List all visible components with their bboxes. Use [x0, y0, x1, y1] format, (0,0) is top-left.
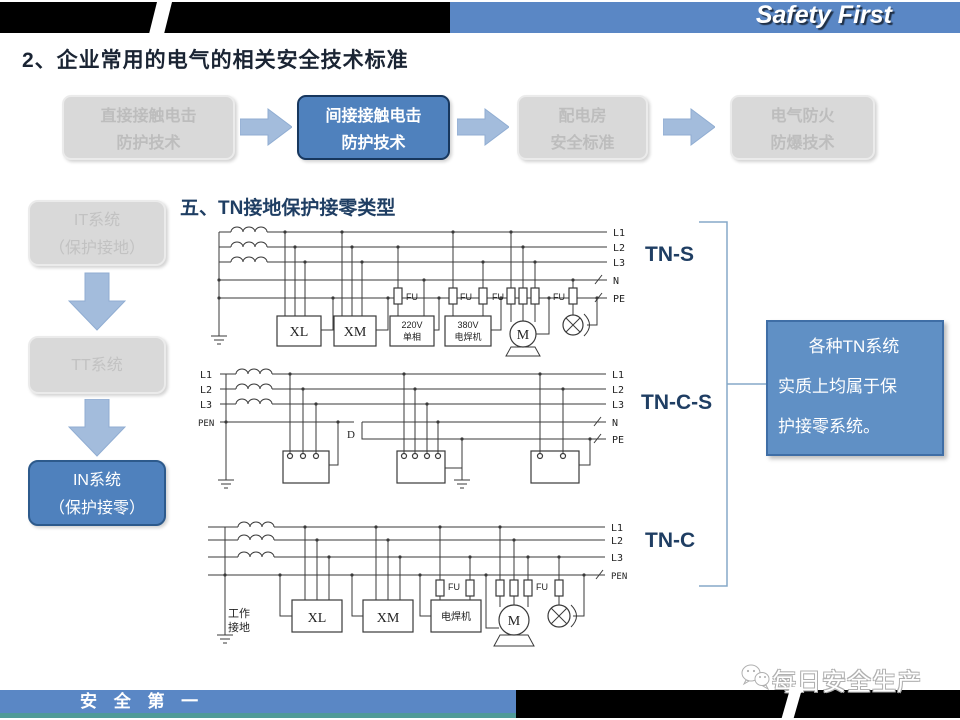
- fuse-label: FU: [492, 292, 504, 302]
- fuse-symbol: [531, 288, 539, 304]
- load-label: XL: [308, 611, 327, 626]
- working-ground-label: 接地: [228, 621, 250, 634]
- flow-box-line2: 安全标准: [519, 130, 646, 157]
- motor-base: [494, 635, 534, 646]
- note-line: 护接零系统。: [778, 407, 934, 447]
- bus-label: L2: [200, 385, 212, 396]
- junction-dots: [223, 525, 585, 576]
- tns-circuit-diagram: L1 L2 L3 N PE XL XM 220V 单相 380V 电焊机 FU …: [211, 218, 641, 360]
- load-label: XM: [344, 325, 367, 340]
- bus-label: L3: [612, 400, 624, 411]
- page-title: 2、企业常用的电气的相关安全技术标准: [22, 44, 409, 74]
- working-ground-label: 工作: [228, 607, 250, 620]
- ground-symbol: [218, 374, 234, 488]
- fuse-symbol: [496, 580, 504, 596]
- bus-label: PEN: [198, 419, 214, 429]
- down-arrow-icon: [68, 271, 126, 333]
- flow-box-line1: 配电房: [519, 103, 646, 130]
- flow-box-direct-contact: 直接接触电击 防护技术: [62, 95, 235, 160]
- flow-box-line2: 防爆技术: [732, 130, 873, 157]
- fuse-symbol: [436, 580, 444, 596]
- flow-box-line1: 直接接触电击: [64, 103, 233, 130]
- load-label: 380V: [457, 320, 478, 330]
- motor-label: M: [517, 328, 530, 343]
- slide: Safety First 2、企业常用的电气的相关安全技术标准 直接接触电击 防…: [0, 0, 960, 720]
- fuse-symbol: [519, 288, 527, 304]
- fuse-symbol: [466, 580, 474, 596]
- side-box-line2: （保护接地）: [30, 235, 164, 263]
- bus-label: PEN: [611, 572, 627, 582]
- fuse-symbol: [507, 288, 515, 304]
- tnc-circuit-diagram: L1 L2 L3 PEN 工作 接地 XL XM 电焊机 FU FU M: [198, 506, 660, 656]
- flow-box-line1: 电气防火: [732, 103, 873, 130]
- fuse-label: FU: [536, 582, 548, 592]
- load-label: 电焊机: [441, 610, 471, 623]
- section-title: 五、TN接地保护接零类型: [180, 193, 395, 220]
- bus-label: L1: [200, 370, 212, 381]
- flow-box-fire-explosion: 电气防火 防爆技术: [730, 95, 875, 160]
- fuse-symbol: [569, 288, 577, 304]
- side-box-in-system: IN系统 （保护接零）: [28, 460, 166, 526]
- tnc-label: TN-C: [645, 529, 695, 553]
- fuse-label: FU: [448, 582, 460, 592]
- load-label: XM: [377, 611, 400, 626]
- fuse-symbol: [394, 288, 402, 304]
- side-box-line1: TT系统: [30, 343, 164, 389]
- footer-teal-strip: [0, 713, 516, 718]
- junction-dots: [217, 230, 598, 299]
- bus-label: L1: [612, 370, 624, 381]
- bus-label: L1: [613, 228, 625, 239]
- side-box-it-system: IT系统 （保护接地）: [28, 200, 166, 266]
- header-black-bar: [0, 2, 450, 33]
- bus-label: L3: [611, 553, 623, 564]
- bus-label: N: [612, 418, 618, 429]
- fuse-symbol: [479, 288, 487, 304]
- footer-slogan-bar: 安 全 第 一: [0, 690, 516, 713]
- motor-base: [506, 347, 540, 356]
- d-point-label: D: [347, 429, 355, 441]
- side-box-line2: （保护接零）: [30, 495, 164, 523]
- flow-box-indirect-contact: 间接接触电击 防护技术: [297, 95, 450, 160]
- junction-dots: [224, 372, 591, 440]
- bus-label: PE: [613, 294, 625, 305]
- note-line: 各种TN系统: [778, 327, 934, 367]
- ground-symbol: [454, 480, 470, 488]
- tncs-circuit-diagram: L1 L2 L3 PEN L1 L2 L3 N PE D: [198, 360, 640, 505]
- ground-symbol: [211, 232, 227, 344]
- fuse-symbol: [510, 580, 518, 596]
- bus-label: PE: [612, 435, 624, 446]
- load-label: 单相: [403, 331, 421, 342]
- brand-text: Safety First: [756, 1, 892, 30]
- fuse-symbol: [449, 288, 457, 304]
- fuse-symbol: [555, 580, 563, 596]
- bus-label: L2: [612, 385, 624, 396]
- bus-label: N: [613, 276, 619, 287]
- right-arrow-icon: [663, 107, 715, 147]
- fuse-label: FU: [406, 292, 418, 302]
- side-box-tt-system: TT系统: [28, 336, 166, 394]
- motor-label: M: [508, 614, 521, 629]
- fuse-label: FU: [553, 292, 565, 302]
- right-arrow-icon: [457, 107, 509, 147]
- bus-label: L2: [613, 243, 625, 254]
- down-arrow-icon: [68, 399, 126, 457]
- bus-label: L2: [611, 536, 623, 547]
- bus-label: L3: [200, 400, 212, 411]
- load-label: XL: [290, 325, 309, 340]
- summary-note-box: 各种TN系统 实质上均属于保 护接零系统。: [766, 320, 944, 456]
- flow-box-line2: 防护技术: [64, 130, 233, 157]
- wechat-logo-icon: [740, 663, 770, 691]
- load-label: 220V: [401, 320, 422, 330]
- right-arrow-icon: [240, 107, 292, 147]
- grouping-bracket: [695, 218, 771, 590]
- side-box-line1: IT系统: [30, 207, 164, 235]
- note-line: 实质上均属于保: [778, 367, 934, 407]
- fuse-label: FU: [460, 292, 472, 302]
- bus-label: L3: [613, 258, 625, 269]
- load-label: 电焊机: [454, 331, 481, 342]
- fuse-symbol: [524, 580, 532, 596]
- side-box-line1: IN系统: [30, 467, 164, 495]
- flow-box-line2: 防护技术: [299, 130, 448, 157]
- bus-label: L1: [611, 523, 623, 534]
- tns-label: TN-S: [645, 243, 694, 267]
- flow-box-distribution-room: 配电房 安全标准: [517, 95, 648, 160]
- flow-box-line1: 间接接触电击: [299, 103, 448, 130]
